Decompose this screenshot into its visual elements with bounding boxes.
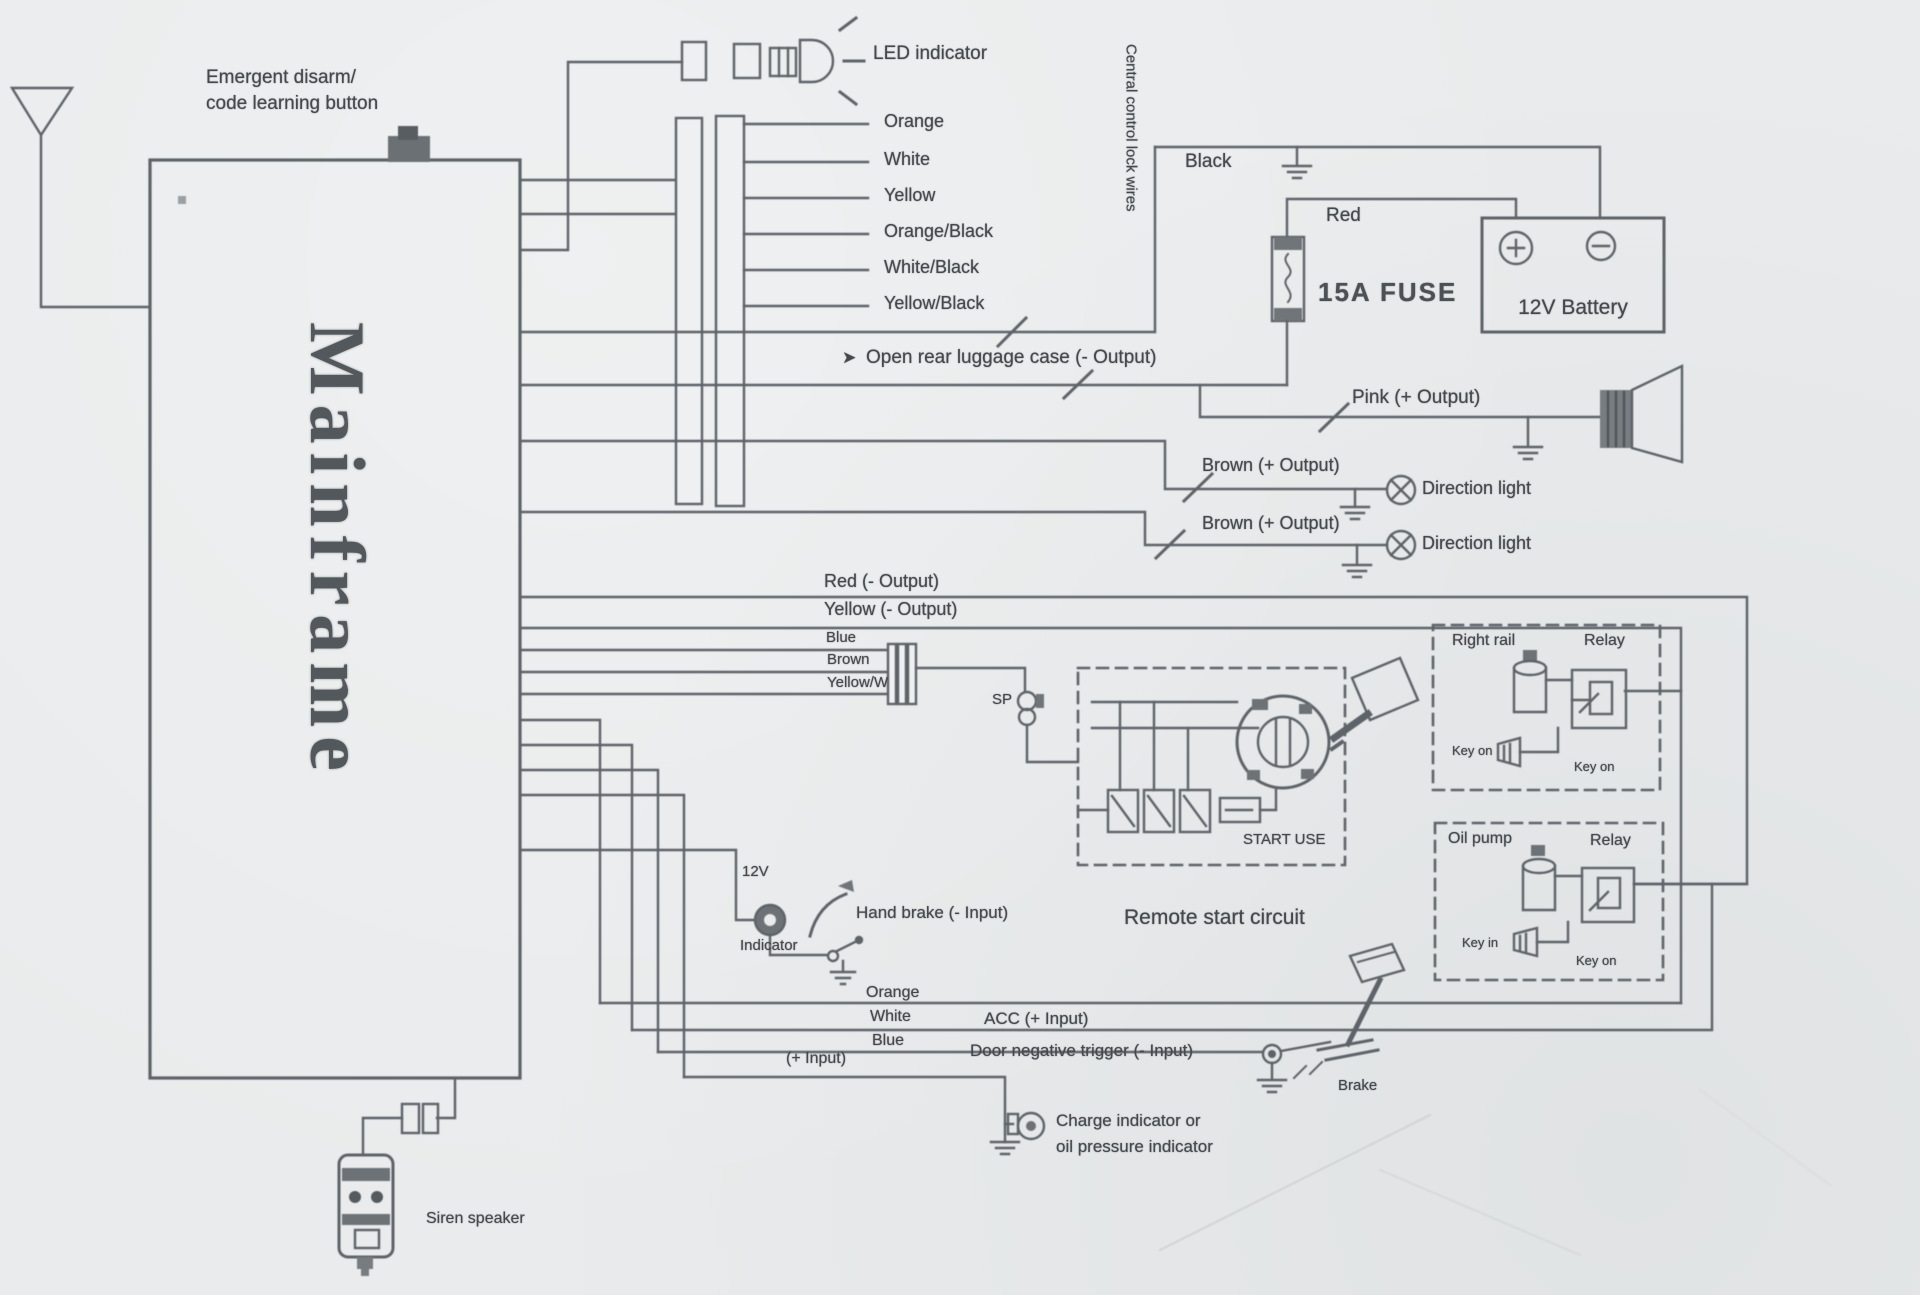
- battery-label: 12V Battery: [1482, 296, 1664, 319]
- wire-label-orange: Orange: [884, 112, 944, 132]
- luggage-output-label: Open rear luggage case (- Output): [866, 348, 1156, 369]
- door-trigger-label: Door negative trigger (- Input): [970, 1042, 1193, 1061]
- blue-bottom-label: Blue: [872, 1032, 904, 1050]
- charge-indicator-label-line2: oil pressure indicator: [1056, 1138, 1213, 1157]
- wire-label-orange-black: Orange/Black: [884, 222, 993, 242]
- diagram-artwork: [0, 0, 1920, 1295]
- red-wire-label: Red: [1326, 206, 1361, 227]
- central-lock-wire: [520, 147, 1155, 346]
- wire-label-white-black: White/Black: [884, 258, 979, 278]
- antenna-icon: [12, 88, 150, 307]
- top-wire-rows: [744, 124, 868, 306]
- emergent-disarm-label-line1: Emergent disarm/: [206, 68, 356, 89]
- wiring-diagram: Emergent disarm/ code learning button Ma…: [0, 0, 1920, 1295]
- relay-box-top-key-left: Key on: [1452, 744, 1492, 758]
- brown-output-label-1: Brown (+ Output): [1202, 456, 1340, 476]
- luggage-arrow-icon: ➤: [842, 349, 856, 368]
- relay-box-top-name: Right rail: [1452, 632, 1515, 650]
- mainframe-title: Mainframe: [292, 322, 382, 962]
- pink-wire-horn: [1200, 366, 1682, 462]
- white-bottom-label: White: [870, 1008, 911, 1026]
- sp-label: SP: [992, 692, 1012, 709]
- charge-indicator-icon: [1005, 1113, 1044, 1139]
- hand-brake-cluster: [520, 850, 862, 984]
- relay-box-top: [1433, 625, 1660, 790]
- direction-light-1: [520, 441, 1415, 519]
- siren-speaker-icon: [339, 1078, 455, 1276]
- acc-input-label: ACC (+ Input): [984, 1010, 1088, 1029]
- red-output-label: Red (- Output): [824, 572, 939, 592]
- bottom-feed-wires: [520, 720, 1712, 1154]
- emergent-disarm-label-line2: code learning button: [206, 94, 378, 115]
- direction-light-label-1: Direction light: [1422, 479, 1531, 499]
- black-wire-label: Black: [1185, 152, 1231, 173]
- relay-box-top-key-right: Key on: [1574, 760, 1614, 774]
- relay-box-bottom-name: Oil pump: [1448, 830, 1512, 848]
- wire-label-yellow: Yellow: [884, 186, 935, 206]
- yellow-w-wire-label: Yellow/W: [827, 675, 888, 692]
- brown-output-label-2: Brown (+ Output): [1202, 514, 1340, 534]
- wire-label-yellow-black: Yellow/Black: [884, 294, 984, 314]
- scan-artifacts: [1160, 1090, 1830, 1255]
- pink-output-label: Pink (+ Output): [1352, 388, 1480, 409]
- blue-wire-label: Blue: [826, 630, 856, 647]
- direction-light-label-2: Direction light: [1422, 534, 1531, 554]
- charge-indicator-label-line1: Charge indicator or: [1056, 1112, 1201, 1131]
- plus-input-label: (+ Input): [786, 1050, 846, 1068]
- relay-box-bottom-key-left: Key in: [1462, 936, 1498, 950]
- wire-label-white: White: [884, 150, 930, 170]
- led-indicator-label: LED indicator: [873, 44, 987, 65]
- indicator-label: Indicator: [740, 938, 798, 955]
- luggage-wire: [520, 371, 1287, 398]
- brake-label: Brake: [1338, 1078, 1377, 1095]
- brake-pedal-icon: [1258, 944, 1404, 1092]
- ignition-inner-label: START USE: [1243, 832, 1326, 849]
- yellow-output-label: Yellow (- Output): [824, 600, 957, 620]
- hand-brake-label: Hand brake (- Input): [856, 904, 1008, 923]
- sp-component: [1018, 692, 1078, 762]
- relay-box-bottom-key-right: Key on: [1576, 954, 1616, 968]
- twelve-v-label: 12V: [742, 864, 769, 881]
- remote-start-caption: Remote start circuit: [1124, 906, 1305, 929]
- orange-bottom-label: Orange: [866, 984, 919, 1002]
- brown-wire-label: Brown: [827, 652, 870, 669]
- fuse-label: 15A FUSE: [1318, 278, 1457, 307]
- relay-box-bottom-relay-label: Relay: [1590, 832, 1631, 850]
- wire-bus-connectors: [520, 116, 744, 506]
- central-lock-label: Central control lock wires: [1122, 44, 1139, 304]
- siren-speaker-label: Siren speaker: [426, 1210, 525, 1228]
- relay-box-top-relay-label: Relay: [1584, 632, 1625, 650]
